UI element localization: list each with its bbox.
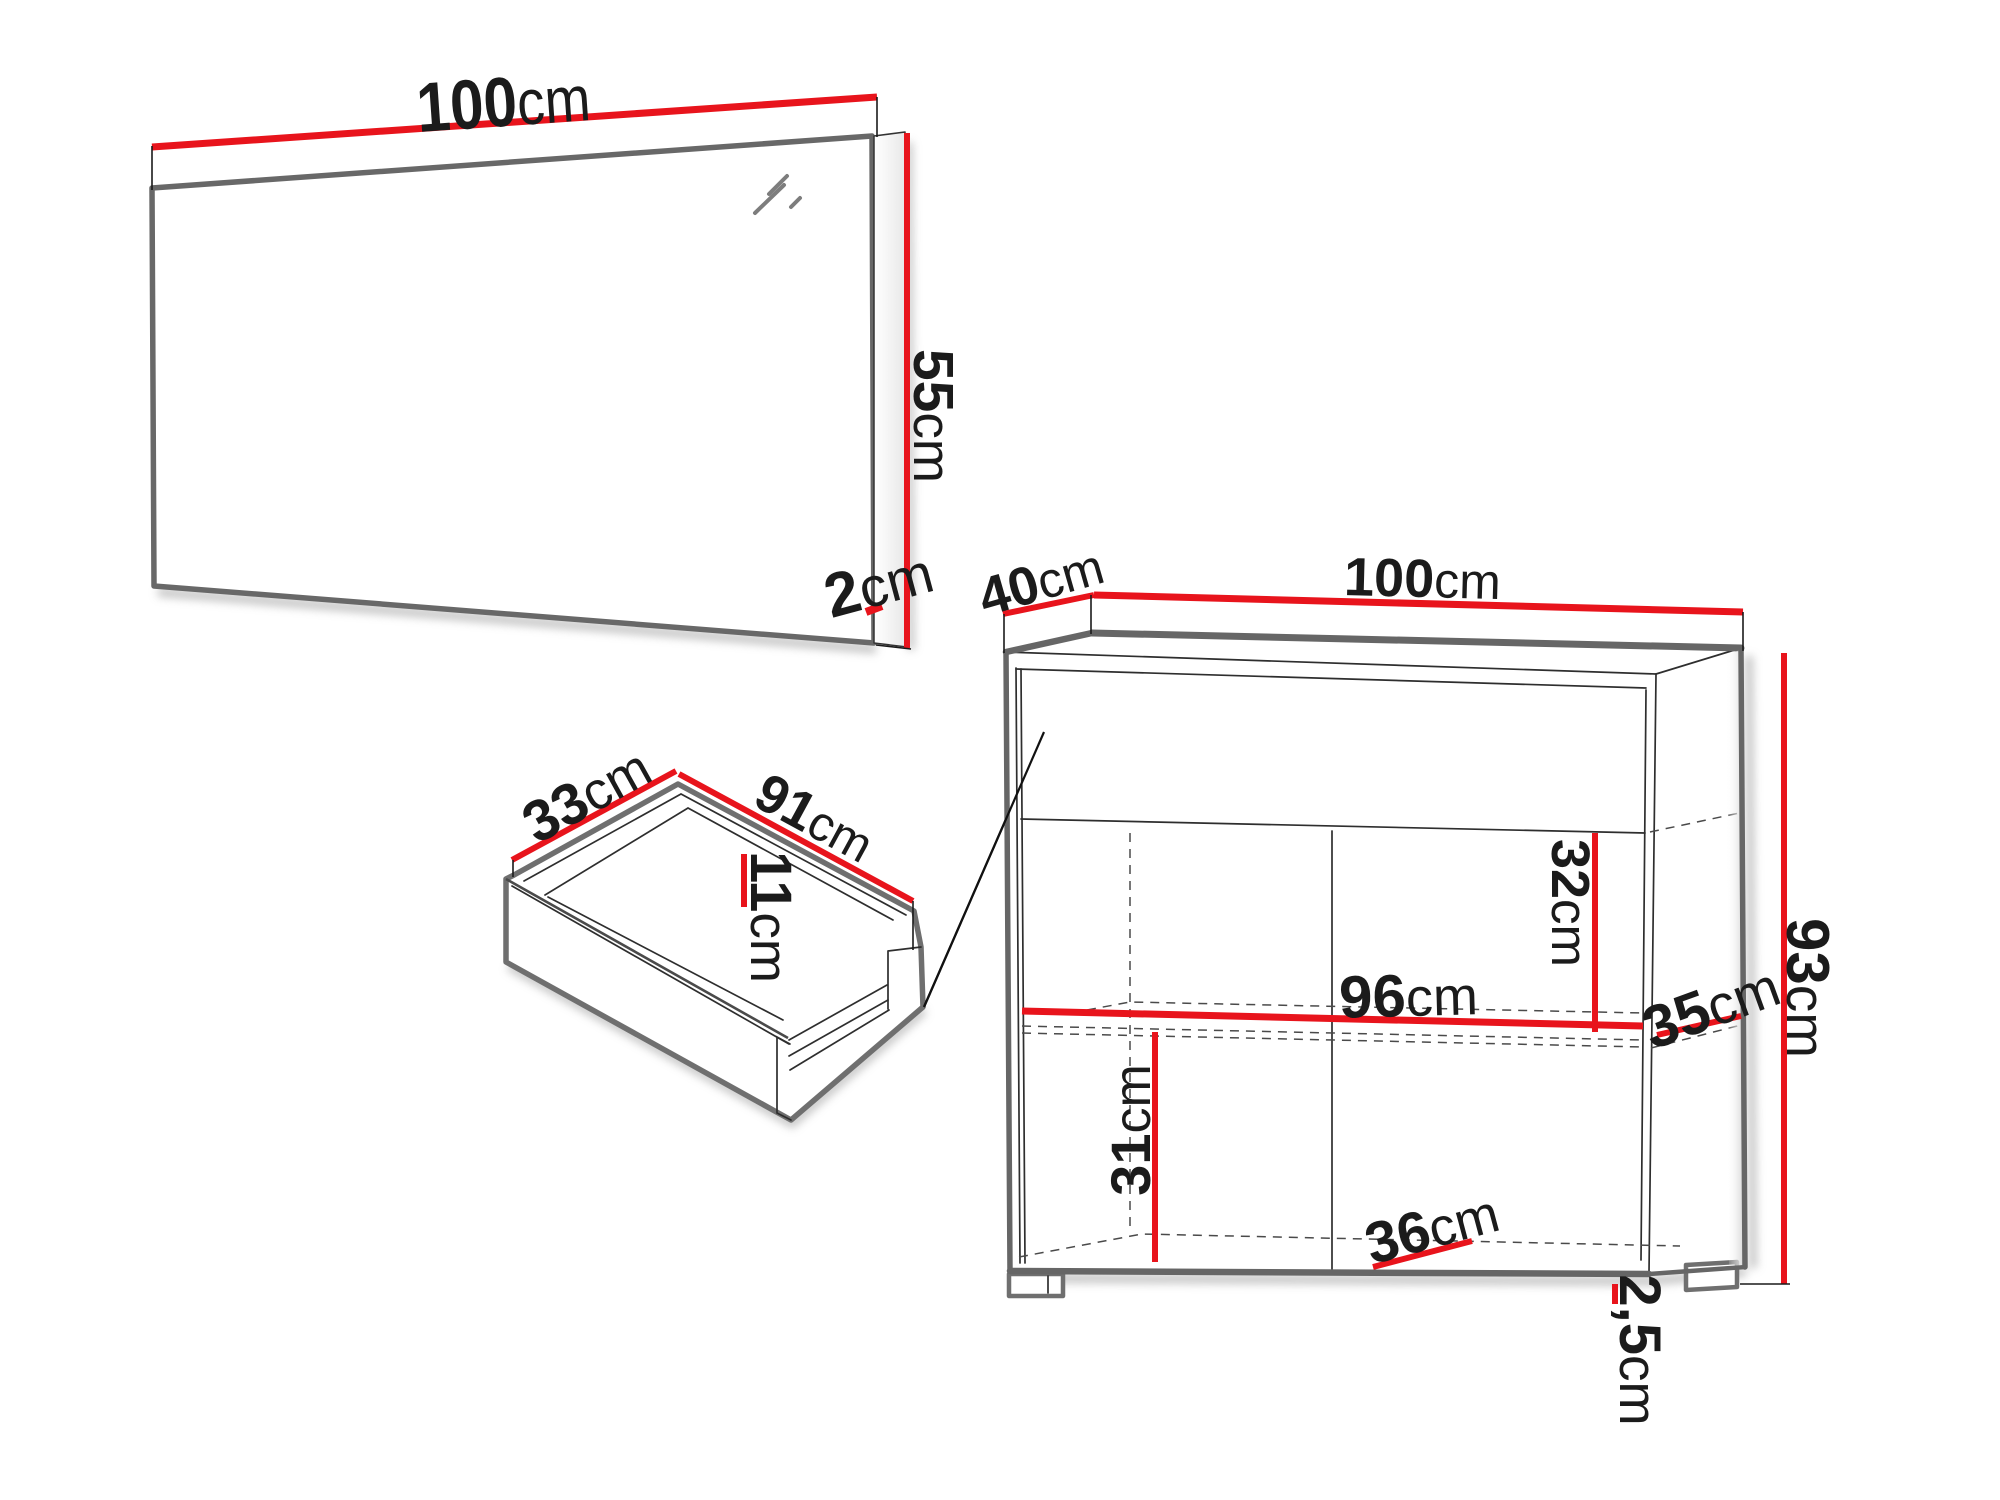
svg-text:96cm: 96cm: [1338, 960, 1478, 1031]
svg-text:31cm: 31cm: [1099, 1064, 1162, 1196]
svg-text:93cm: 93cm: [1774, 918, 1841, 1058]
svg-text:100cm: 100cm: [414, 57, 593, 147]
svg-text:2,5cm: 2,5cm: [1607, 1274, 1672, 1425]
svg-text:100cm: 100cm: [1343, 547, 1501, 611]
svg-text:11cm: 11cm: [738, 851, 803, 983]
svg-text:32cm: 32cm: [1540, 839, 1600, 967]
svg-text:55cm: 55cm: [901, 349, 965, 483]
svg-text:40cm: 40cm: [972, 535, 1110, 628]
